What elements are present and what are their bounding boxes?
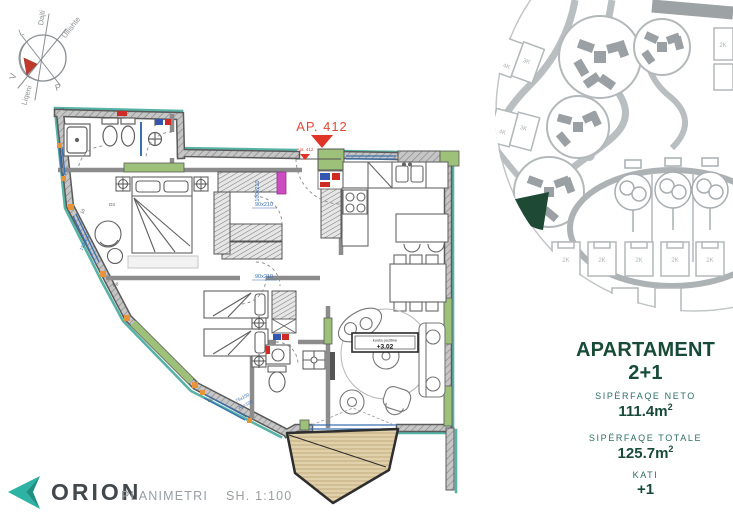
bathroom-2 (266, 345, 325, 392)
svg-text:2K: 2K (671, 258, 678, 264)
orion-logo-icon (6, 474, 42, 510)
scale-label: SH. 1:100 (226, 489, 292, 503)
floor-value: +1 (558, 481, 733, 498)
compass-axis-liqeni: Liqeni (19, 84, 34, 106)
level-note: kuota pozitive +3.02 (352, 333, 418, 352)
window-id-d: 10 (79, 208, 86, 215)
plan-sheet: Dajti Ullishte Liqeni L V P (0, 0, 733, 517)
compass-letter-v: V (7, 72, 18, 80)
net-area-value: 111.4m2 (558, 402, 733, 420)
svg-text:kuota pozitive: kuota pozitive (373, 338, 398, 343)
unit-callout-small: Apt. 412 (297, 147, 314, 152)
window-id-a: D3 (109, 202, 115, 207)
svg-text:2K: 2K (635, 258, 642, 264)
titleblock-row: PLANIMETRI SH. 1:100 (121, 489, 292, 503)
total-area-value: 125.7m2 (558, 444, 733, 462)
wall-bar-kitchen-top (398, 151, 440, 162)
wall-stub-bottom-right (446, 428, 454, 490)
site-plan: 2K 2K 2K 2K 2K 2K 2K 4K 3K 4K 3K (488, 0, 733, 318)
floor-label: KATI (558, 470, 733, 480)
compass-letter-p: P (54, 82, 62, 93)
kitchen (342, 162, 448, 311)
compass-axis-dajti: Dajti (36, 9, 47, 25)
door-dim-1: 90x210 (255, 202, 273, 208)
svg-text:2K: 2K (598, 258, 605, 264)
svg-text:+3.02: +3.02 (377, 344, 394, 351)
total-area-label: SIPËRFAQE TOTALE (558, 433, 733, 443)
svg-text:2K: 2K (562, 258, 569, 264)
floor-plan: AP. 412 Apt. 412 kuota pozitive +3.02 90… (55, 108, 459, 503)
svg-text:2K: 2K (706, 258, 713, 264)
unit-callout-arrow (311, 135, 333, 148)
svg-text:2K: 2K (719, 43, 726, 49)
compass-axis-ullishte: Ullishte (60, 15, 82, 40)
compass-letter-l: L (17, 27, 25, 38)
net-area-label: SIPËRFAQE NETO (558, 391, 733, 401)
cabinet-x (272, 319, 296, 333)
compass-rose: Dajti Ullishte Liqeni L V P (7, 9, 82, 106)
balcony (287, 429, 398, 503)
window-id-b: D8 (112, 281, 120, 288)
entry-dim: 100x210 (255, 180, 261, 201)
total-area-sup: 2 (668, 444, 673, 454)
door-dim-2: 90x210 (255, 274, 273, 280)
net-area-sup: 2 (668, 402, 673, 412)
master-bedroom (95, 177, 208, 268)
apartment-title: APARTAMENT 2+1 (558, 339, 733, 385)
svg-text:2K: 2K (621, 302, 628, 308)
unit-callout: AP. 412 (296, 119, 348, 134)
doc-type-label: PLANIMETRI (121, 489, 208, 503)
